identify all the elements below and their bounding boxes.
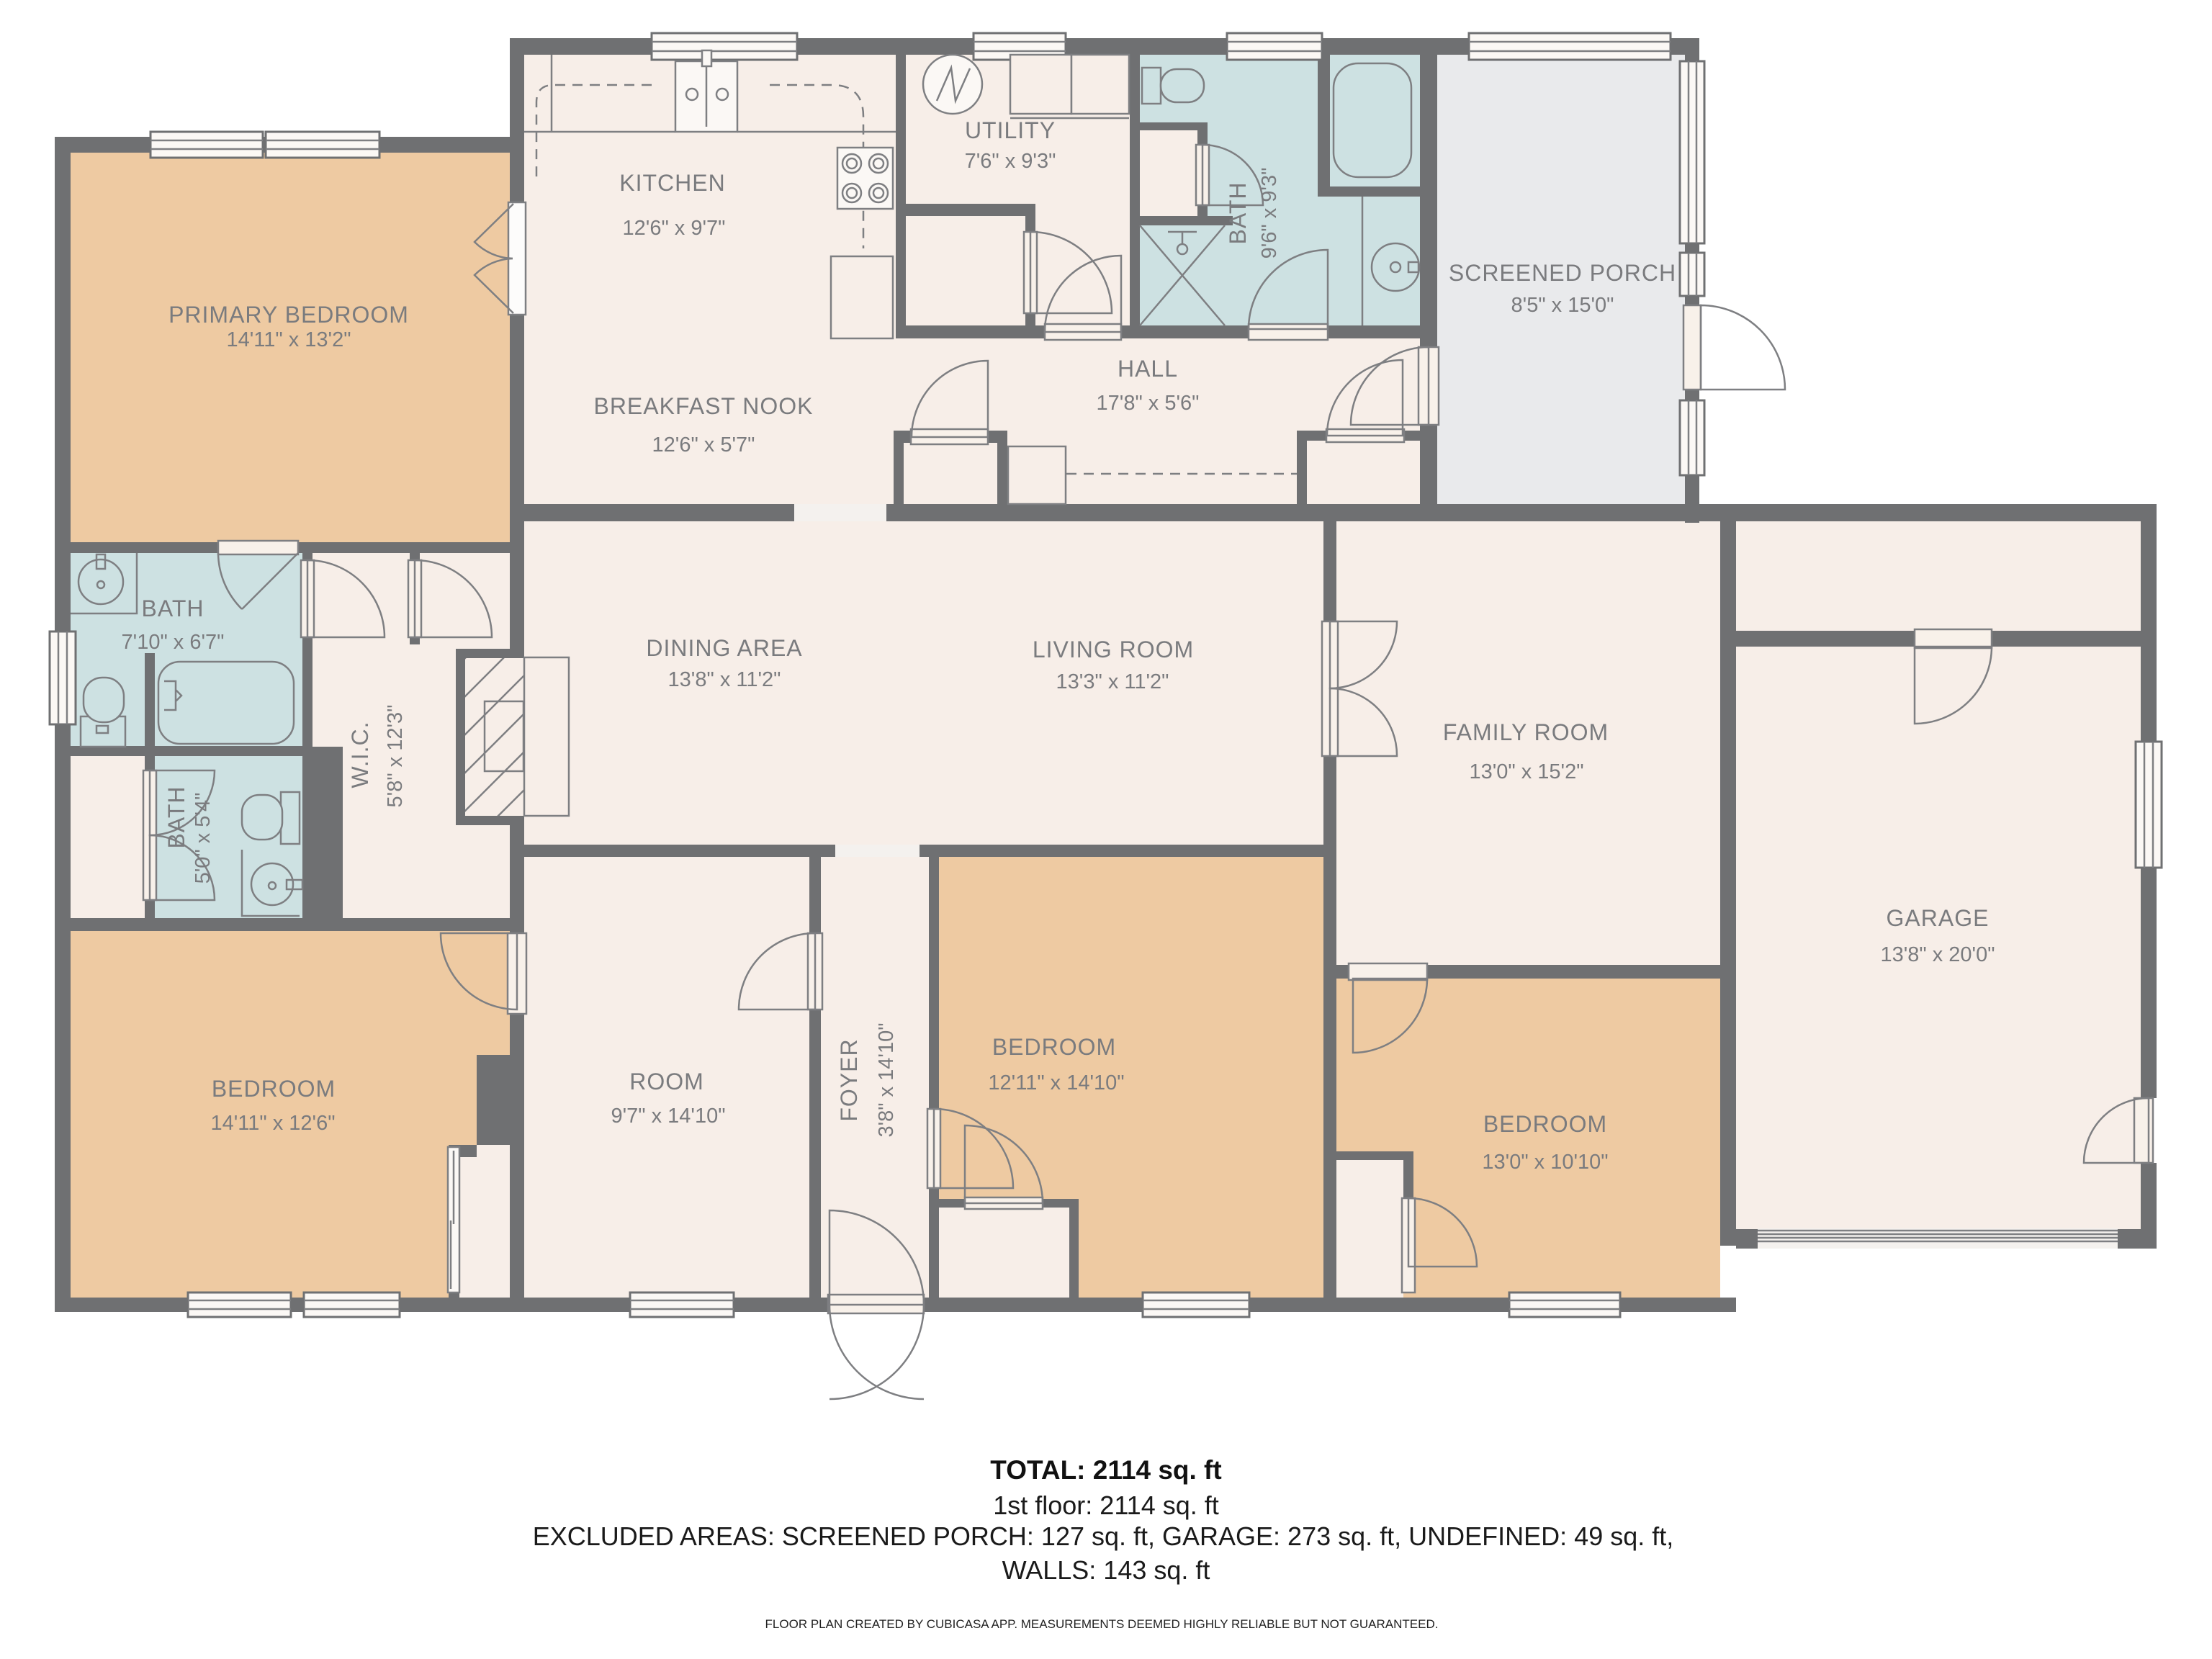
svg-text:FLOOR PLAN CREATED BY CUBICASA: FLOOR PLAN CREATED BY CUBICASA APP. MEAS… — [765, 1617, 1439, 1631]
svg-text:BREAKFAST NOOK: BREAKFAST NOOK — [593, 393, 813, 419]
svg-text:9'6" x 9'3": 9'6" x 9'3" — [1258, 168, 1281, 259]
svg-text:TOTAL: 2114 sq. ft: TOTAL: 2114 sq. ft — [990, 1455, 1221, 1485]
svg-text:PRIMARY BEDROOM: PRIMARY BEDROOM — [168, 302, 409, 328]
svg-text:W.I.C.: W.I.C. — [347, 721, 373, 788]
svg-text:BATH: BATH — [1225, 182, 1251, 245]
svg-text:UTILITY: UTILITY — [965, 117, 1056, 143]
svg-text:BEDROOM: BEDROOM — [1483, 1111, 1607, 1137]
svg-text:8'5" x 15'0": 8'5" x 15'0" — [1511, 294, 1614, 317]
svg-text:BEDROOM: BEDROOM — [212, 1076, 336, 1102]
svg-text:FOYER: FOYER — [836, 1038, 862, 1121]
svg-text:HALL: HALL — [1118, 356, 1178, 382]
svg-text:ROOM: ROOM — [629, 1069, 704, 1094]
svg-text:13'8" x 20'0": 13'8" x 20'0" — [1880, 943, 1995, 966]
svg-text:7'6" x 9'3": 7'6" x 9'3" — [965, 150, 1056, 173]
svg-text:BEDROOM: BEDROOM — [992, 1034, 1116, 1060]
svg-text:1st floor: 2114 sq. ft: 1st floor: 2114 sq. ft — [993, 1491, 1219, 1520]
svg-text:13'0" x 10'10": 13'0" x 10'10" — [1482, 1151, 1608, 1174]
svg-text:3'8" x 14'10": 3'8" x 14'10" — [875, 1022, 898, 1137]
svg-text:7'10" x 6'7": 7'10" x 6'7" — [122, 631, 225, 654]
svg-text:GARAGE: GARAGE — [1887, 905, 1990, 931]
svg-text:WALLS: 143 sq. ft: WALLS: 143 sq. ft — [1002, 1555, 1210, 1585]
svg-text:BATH: BATH — [142, 595, 204, 621]
svg-text:SCREENED PORCH: SCREENED PORCH — [1449, 260, 1676, 286]
svg-text:12'6" x 9'7": 12'6" x 9'7" — [623, 217, 726, 240]
svg-text:13'3" x 11'2": 13'3" x 11'2" — [1056, 670, 1169, 693]
svg-text:LIVING ROOM: LIVING ROOM — [1033, 637, 1194, 662]
svg-text:BATH: BATH — [163, 786, 189, 849]
svg-text:5'0" x 5'4": 5'0" x 5'4" — [192, 793, 215, 884]
svg-text:12'6" x 5'7": 12'6" x 5'7" — [652, 433, 755, 457]
svg-text:9'7" x 14'10": 9'7" x 14'10" — [611, 1105, 725, 1128]
svg-text:KITCHEN: KITCHEN — [619, 170, 725, 196]
svg-text:14'11" x 12'6": 14'11" x 12'6" — [210, 1112, 335, 1135]
svg-text:5'8" x 12'3": 5'8" x 12'3" — [384, 705, 407, 808]
svg-text:EXCLUDED AREAS: SCREENED PORCH: EXCLUDED AREAS: SCREENED PORCH: 127 sq. … — [533, 1521, 1674, 1551]
svg-text:13'8" x 11'2": 13'8" x 11'2" — [668, 668, 781, 691]
svg-text:14'11" x 13'2": 14'11" x 13'2" — [226, 328, 351, 351]
svg-text:DINING AREA: DINING AREA — [646, 635, 802, 661]
svg-text:17'8" x 5'6": 17'8" x 5'6" — [1097, 392, 1200, 415]
svg-text:12'11" x 14'10": 12'11" x 14'10" — [988, 1071, 1124, 1094]
svg-text:13'0" x 15'2": 13'0" x 15'2" — [1469, 760, 1583, 783]
svg-text:FAMILY ROOM: FAMILY ROOM — [1443, 719, 1609, 745]
